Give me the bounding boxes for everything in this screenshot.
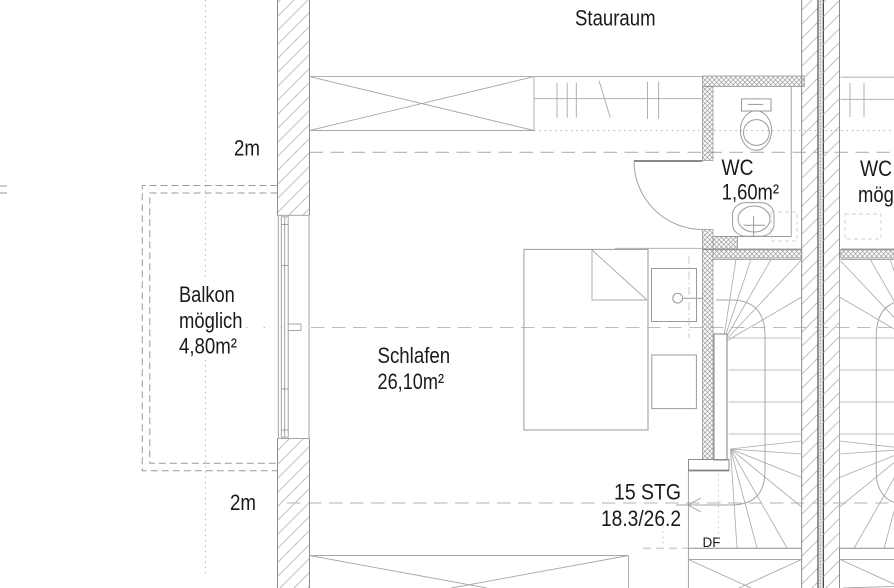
svg-text:26,10m²: 26,10m² (378, 369, 445, 394)
svg-text:WC: WC (722, 155, 754, 180)
svg-text:möglich: möglich (179, 308, 243, 333)
svg-text:1,60m²: 1,60m² (722, 179, 779, 204)
svg-text:Stauraum: Stauraum (575, 6, 656, 31)
svg-text:2m: 2m (230, 490, 256, 515)
svg-text:WC: WC (860, 156, 892, 181)
svg-text:4,80m²: 4,80m² (179, 334, 237, 359)
svg-text:15 STG: 15 STG (614, 480, 681, 505)
svg-text:Schlafen: Schlafen (378, 343, 451, 368)
svg-text:möglich: möglich (858, 182, 894, 207)
svg-text:Balkon: Balkon (179, 282, 235, 307)
svg-text:18.3/26.2: 18.3/26.2 (601, 506, 681, 531)
svg-text:2m: 2m (234, 136, 260, 161)
